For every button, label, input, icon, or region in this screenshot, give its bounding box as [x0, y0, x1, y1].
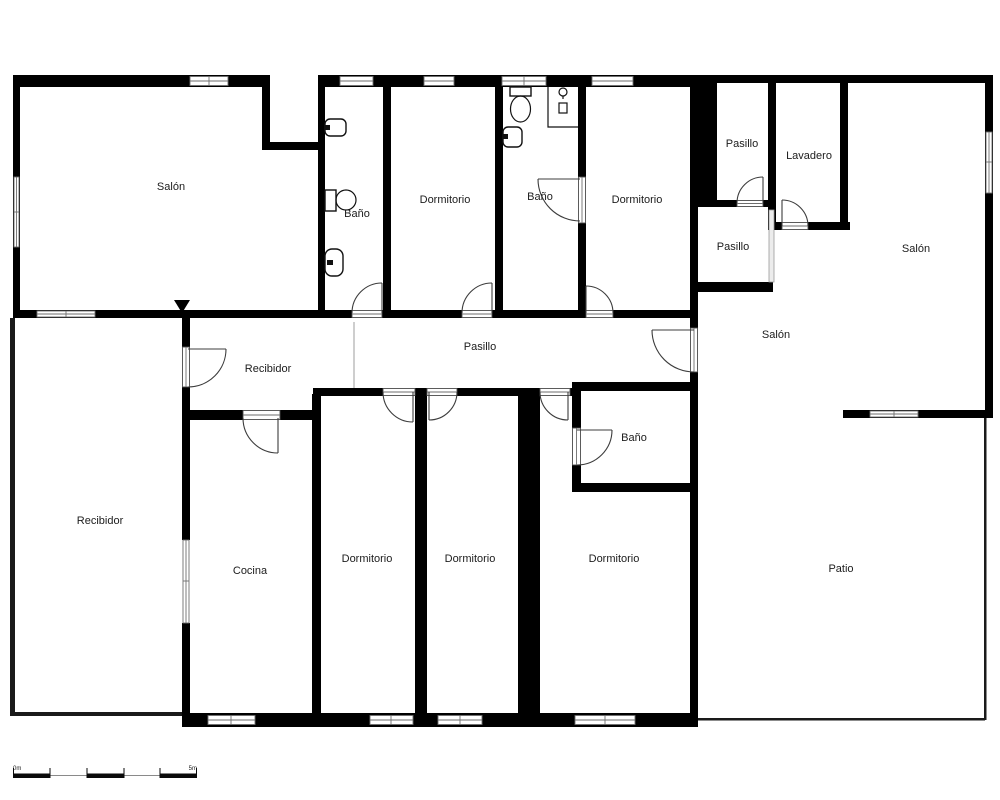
door-arc	[352, 283, 382, 313]
window	[438, 716, 482, 725]
room-labels: Salón Baño Dormitorio Baño Dormitorio Pa…	[77, 138, 930, 577]
wall	[518, 390, 540, 723]
window	[370, 716, 413, 725]
door-threshold	[573, 428, 581, 465]
door-arc	[577, 430, 612, 465]
door-arc	[652, 330, 694, 372]
door-arc	[540, 392, 568, 420]
wall	[717, 200, 737, 207]
window	[986, 132, 992, 193]
wall	[312, 394, 321, 723]
wall	[13, 75, 269, 87]
wall	[10, 318, 15, 716]
floor-plan: Salón Baño Dormitorio Baño Dormitorio Pa…	[0, 0, 1000, 800]
door-arc	[462, 283, 492, 313]
room-label-lavadero: Lavadero	[786, 150, 832, 162]
wall	[320, 310, 352, 318]
wall	[697, 282, 773, 292]
scale-bar: 0m 5m	[13, 766, 197, 778]
room-label-pasillo-top: Pasillo	[726, 138, 758, 150]
window	[592, 77, 633, 86]
door-threshold	[427, 389, 457, 396]
opening	[769, 210, 774, 282]
wall	[697, 718, 985, 721]
door-threshold	[352, 311, 382, 318]
door-threshold	[540, 389, 570, 396]
scale-start-label: 0m	[13, 766, 21, 772]
window	[183, 540, 189, 623]
wall	[382, 310, 462, 318]
wall	[492, 310, 586, 318]
wall	[768, 83, 776, 230]
wall	[776, 222, 782, 230]
window	[575, 716, 635, 725]
wall	[984, 418, 987, 720]
room-label-pasillo-corridor: Pasillo	[464, 341, 496, 353]
window	[14, 177, 19, 247]
wall	[262, 75, 270, 150]
room-label-dormitorio-1: Dormitorio	[420, 194, 471, 206]
door-threshold	[183, 347, 190, 387]
wall	[572, 382, 581, 428]
wall	[713, 75, 993, 83]
wall	[182, 410, 243, 420]
room-label-patio: Patio	[828, 563, 853, 575]
window	[37, 311, 95, 317]
wall	[415, 388, 427, 396]
door-threshold	[737, 201, 763, 207]
sink-icon	[502, 127, 522, 147]
window	[208, 716, 255, 725]
wall	[318, 87, 325, 318]
scale-segment	[87, 774, 124, 779]
room-label-bano-2: Baño	[527, 191, 553, 203]
wall	[313, 388, 383, 396]
door-arc	[429, 392, 457, 420]
wall	[10, 712, 186, 716]
wall	[572, 382, 693, 391]
door-arc	[243, 418, 278, 453]
window	[424, 77, 454, 86]
shower-icon	[548, 87, 578, 127]
wall	[182, 318, 190, 347]
door-threshold	[579, 177, 586, 223]
wall	[613, 310, 690, 318]
floor-plan-page: Salón Baño Dormitorio Baño Dormitorio Pa…	[0, 0, 1000, 800]
wall	[840, 75, 848, 230]
door-threshold	[462, 311, 492, 318]
wall	[262, 142, 320, 150]
door-threshold	[383, 389, 415, 396]
door-threshold	[586, 311, 613, 318]
door-threshold	[691, 328, 698, 372]
room-label-salon-right: Salón	[902, 243, 930, 255]
wall	[690, 372, 698, 723]
room-label-bano-3: Baño	[621, 432, 647, 444]
door-arc	[188, 349, 226, 387]
wall	[763, 200, 772, 207]
window	[870, 411, 918, 417]
wall	[383, 87, 391, 318]
room-label-salon-top-left: Salón	[157, 181, 185, 193]
door-arc	[383, 392, 413, 422]
window	[502, 77, 546, 86]
room-label-dormitorio-4: Dormitorio	[445, 553, 496, 565]
fixtures	[324, 87, 578, 276]
door-arc	[586, 286, 613, 313]
room-label-recibidor-vestibule: Recibidor	[245, 363, 292, 375]
wall	[415, 396, 427, 723]
room-label-dormitorio-3: Dormitorio	[342, 553, 393, 565]
wall	[280, 410, 313, 420]
scale-segment	[13, 774, 50, 779]
room-label-dormitorio-5: Dormitorio	[589, 553, 640, 565]
scale-segment	[160, 774, 197, 779]
room-label-dormitorio-2: Dormitorio	[612, 194, 663, 206]
wall	[572, 483, 693, 492]
room-label-recibidor-main: Recibidor	[77, 515, 124, 527]
door-threshold	[782, 223, 808, 230]
wall	[808, 222, 850, 230]
window	[190, 77, 228, 86]
room-label-salon-mid: Salón	[762, 329, 790, 341]
door-threshold	[243, 411, 280, 420]
room-label-bano-1: Baño	[344, 208, 370, 220]
sink-icon	[324, 119, 346, 136]
wall	[578, 87, 586, 177]
wall	[182, 420, 190, 540]
door-arc	[737, 177, 763, 203]
bidet-icon	[325, 249, 343, 276]
wall	[693, 75, 717, 207]
room-label-pasillo-mid: Pasillo	[717, 241, 749, 253]
wall	[578, 223, 586, 318]
wall	[182, 623, 190, 713]
walls	[10, 75, 993, 727]
toilet-icon	[510, 87, 531, 122]
window	[340, 77, 373, 86]
room-label-cocina: Cocina	[233, 565, 268, 577]
scale-end-label: 5m	[189, 766, 197, 772]
wall	[495, 87, 503, 310]
